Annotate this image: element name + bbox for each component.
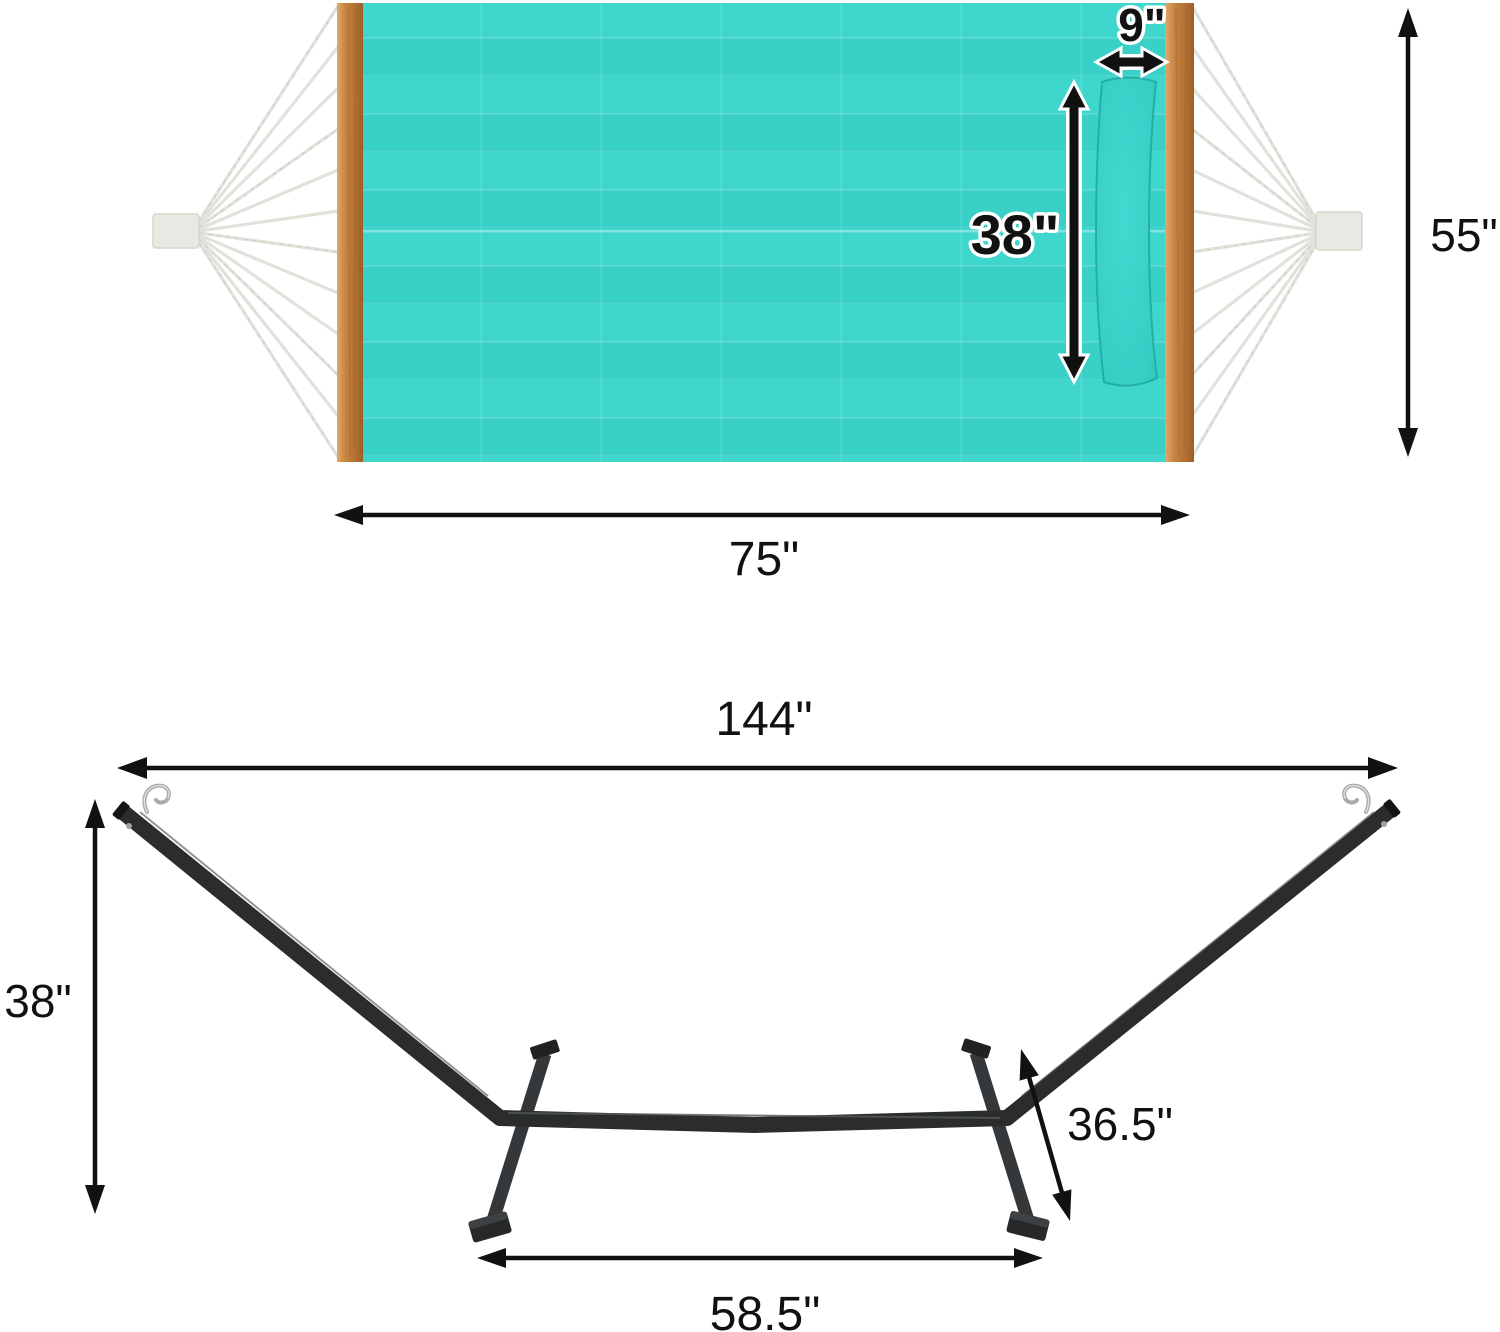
stand-left-foot [468, 1211, 513, 1243]
stand-right-foot [1006, 1210, 1050, 1241]
left-rope-fan [199, 6, 338, 457]
bed-length-label: 75" [729, 533, 799, 586]
left-s-hook [144, 786, 168, 812]
pillow-length-label: 38" [971, 203, 1060, 266]
stand-height-arrow [85, 799, 105, 1214]
stand-right-pole-highlight [1022, 812, 1374, 1096]
pillow-width-label: 9" [1118, 0, 1165, 51]
rope-line [199, 241, 338, 416]
stand-length-label: 144" [715, 693, 812, 746]
pillow [1096, 78, 1157, 386]
leg-length-label: 36.5" [1067, 1098, 1173, 1150]
rope-line [1192, 47, 1317, 223]
hammock-width-arrow [1398, 8, 1418, 457]
stand-frame [123, 810, 1390, 1125]
left-pole-pin [126, 823, 132, 829]
left-rope-knot [153, 214, 199, 248]
rope-line [1192, 241, 1317, 416]
right-s-hook [1344, 786, 1368, 812]
hammock-dimensions-diagram: 9" 38" 55" 75" 144" [0, 0, 1500, 1332]
base-span-label: 58.5" [710, 1288, 820, 1332]
stand-left-leg [489, 1054, 545, 1233]
diagram-svg: 9" 38" 55" 75" 144" [0, 0, 1500, 1332]
right-rope-knot [1316, 212, 1362, 250]
rope-line [199, 47, 338, 223]
base-span-arrow [477, 1248, 1043, 1268]
rope-line [199, 88, 338, 225]
right-rope-fan [1192, 6, 1317, 457]
hammock-top-view: 9" 38" 55" 75" [153, 0, 1498, 586]
stand-length-arrow [117, 757, 1398, 779]
right-spreader-bar [1165, 3, 1194, 462]
hammock-width-label: 55" [1430, 209, 1498, 261]
right-pole-pin [1381, 821, 1387, 827]
stand-left-pole-highlight [140, 812, 488, 1096]
stand-height-label: 38" [4, 975, 72, 1027]
stand-side-view: 144" [4, 693, 1401, 1332]
rope-line [1192, 88, 1317, 225]
bed-length-arrow [334, 505, 1190, 525]
